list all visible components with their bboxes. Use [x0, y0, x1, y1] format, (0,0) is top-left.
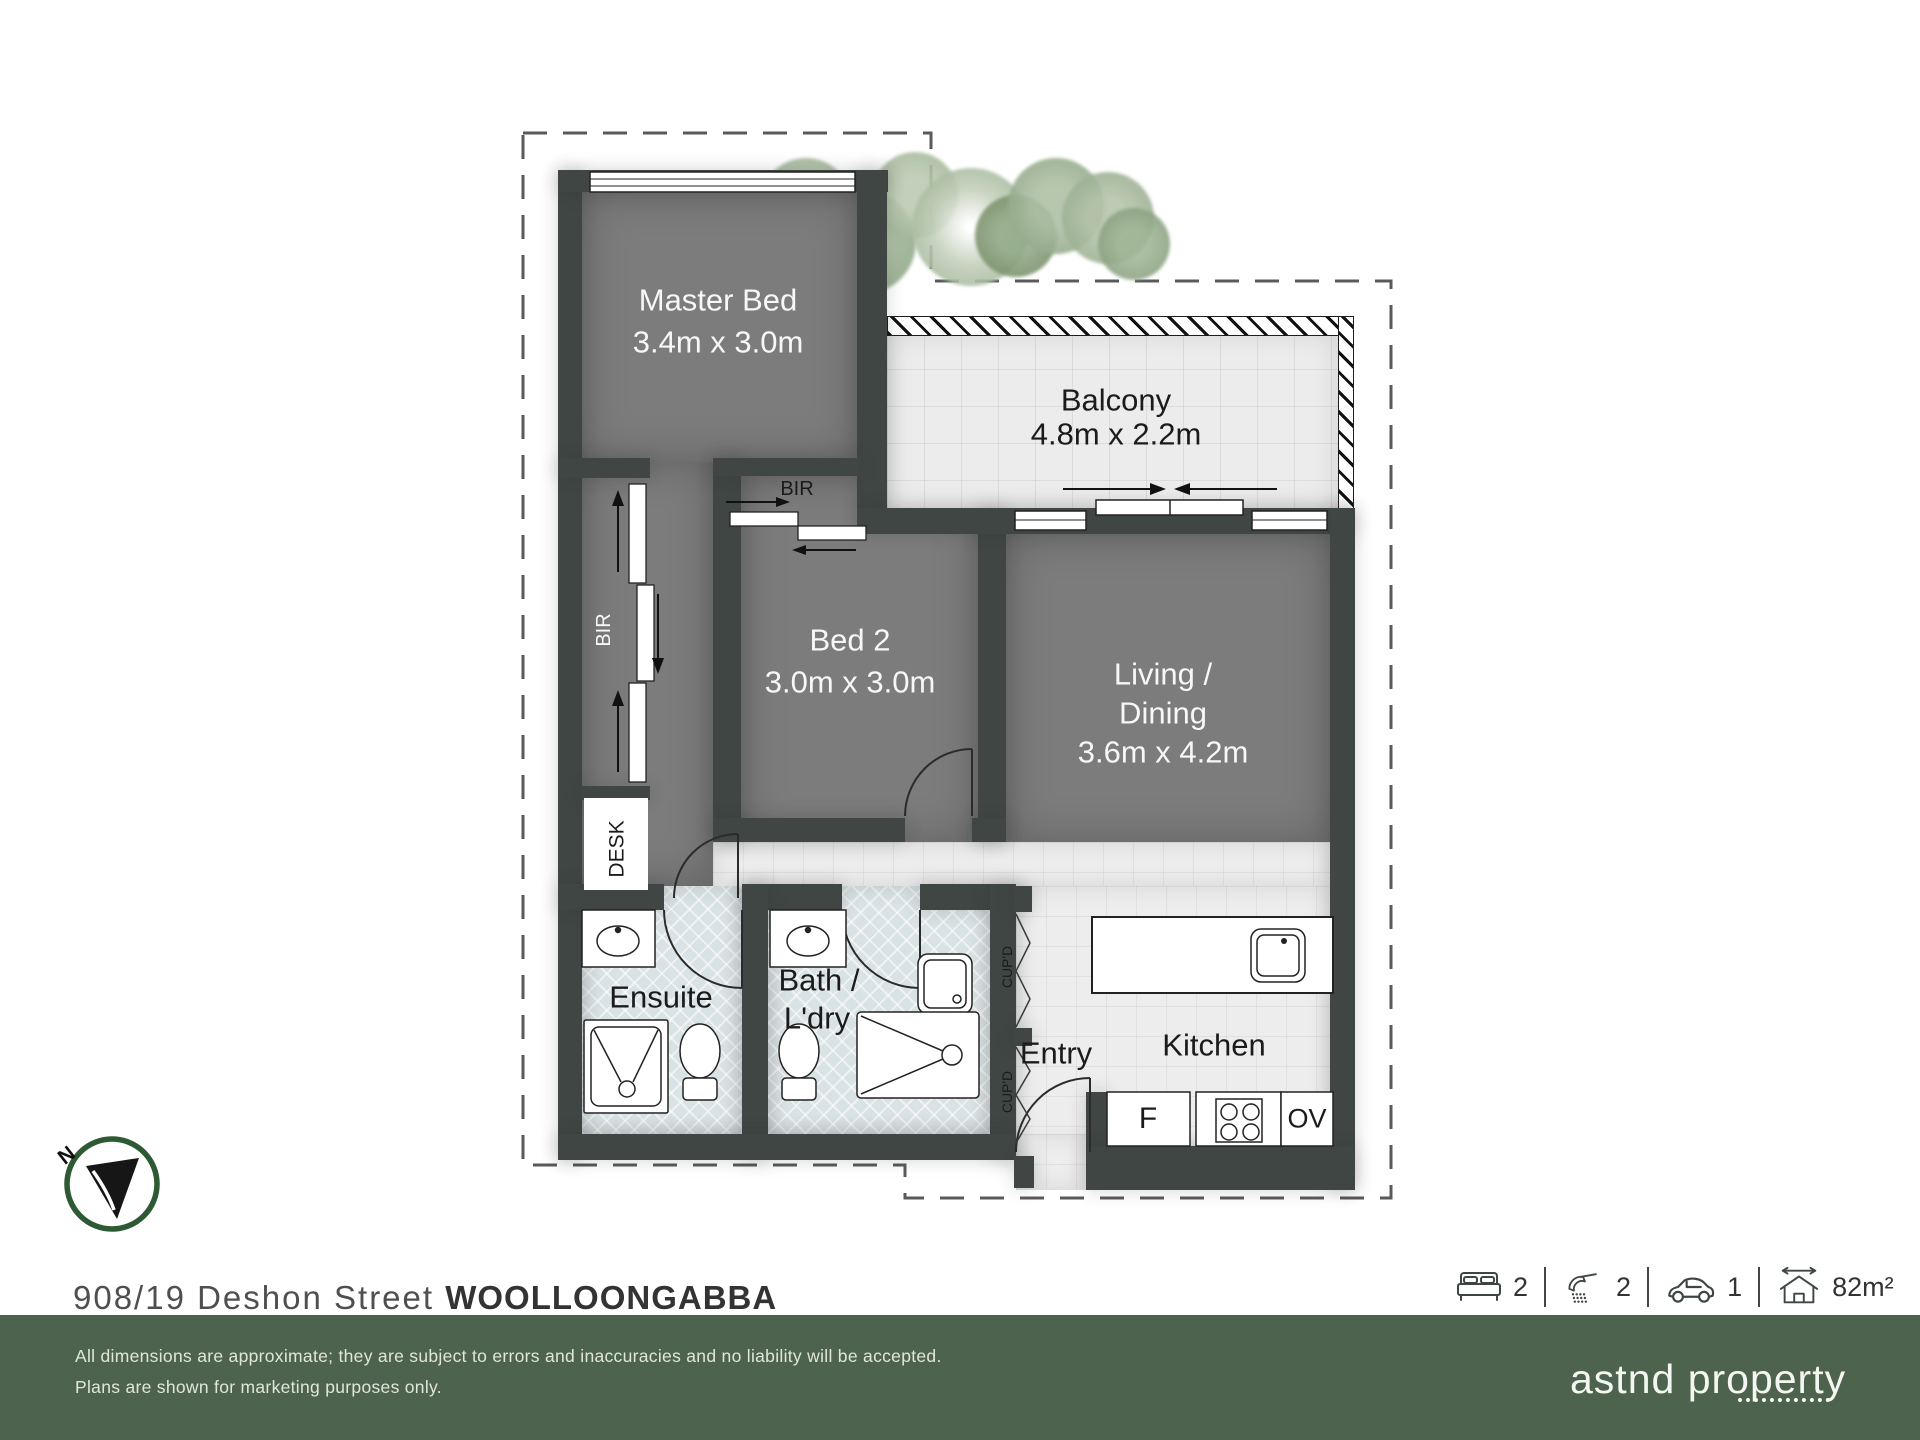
wall-bed2-bottom-b [972, 818, 1006, 842]
wall-master-top [558, 170, 888, 192]
bed2-name: Bed 2 [809, 625, 890, 656]
oven-label: OV [1287, 1106, 1326, 1133]
compass-north-label: N [48, 1137, 86, 1174]
wall-bath-right [990, 884, 1016, 1160]
ensuite-name: Ensuite [609, 982, 712, 1013]
bath-line2: L'dry [784, 1003, 850, 1034]
car-icon [1665, 1268, 1717, 1306]
wall-master-right [857, 170, 887, 512]
stats-divider [1647, 1267, 1649, 1307]
wall-cupd-stub-top [1014, 886, 1032, 912]
living-line1: Living / [1114, 659, 1212, 690]
wall-east [1330, 508, 1355, 1190]
balcony-name: Balcony [1061, 385, 1171, 416]
kitchen-name: Kitchen [1162, 1030, 1265, 1061]
beds-count: 2 [1513, 1272, 1528, 1303]
stats-divider [1758, 1267, 1760, 1307]
master-name: Master Bed [639, 285, 798, 316]
cupboard-label-top: CUP'D [1000, 946, 1014, 988]
wall-bed2-top [713, 458, 859, 476]
entry-kitchen-floor [1016, 886, 1330, 1146]
wall-bed2-living-divider [978, 508, 1006, 842]
area-value: 82m² [1832, 1272, 1894, 1303]
entry-name: Entry [1020, 1038, 1092, 1069]
wall-entry-stub-bottom [1014, 1156, 1034, 1188]
fridge-label: F [1139, 1104, 1157, 1134]
property-address: 908/19 Deshon Street WOOLLOONGABBA [73, 1279, 777, 1317]
address-street: 908/19 Deshon Street [73, 1279, 434, 1316]
tree-icon [1098, 208, 1170, 280]
wall-hall-divider [713, 458, 741, 842]
balcony-railing-top [887, 316, 1354, 336]
wall-bath-divider [742, 884, 768, 1160]
stats-divider [1544, 1267, 1546, 1307]
wall-robe-stub-top [558, 458, 650, 478]
hall-bir-label: BIR [594, 613, 614, 646]
wall-west [558, 170, 582, 1160]
balcony-railing-right [1338, 316, 1354, 514]
cars-count: 1 [1727, 1272, 1742, 1303]
bath-line1: Bath / [779, 965, 860, 996]
wall-kitchen-stub [1086, 1092, 1107, 1146]
corridor-floor [713, 842, 1330, 886]
wall-north-living [857, 508, 1355, 534]
desk-label: DESK [607, 820, 628, 877]
bed-icon [1455, 1268, 1503, 1306]
balcony-dims: 4.8m x 2.2m [1031, 419, 1202, 450]
area-icon [1776, 1267, 1822, 1307]
shower-icon [1562, 1268, 1606, 1306]
agency-logo: astnd property [1570, 1356, 1846, 1403]
cupboard-label-bottom: CUP'D [1000, 1071, 1014, 1113]
property-stats: 2 2 1 82m² [1455, 1262, 1894, 1312]
baths-count: 2 [1616, 1272, 1631, 1303]
bed2-dims: 3.0m x 3.0m [765, 667, 936, 698]
living-line2: Dining [1119, 698, 1207, 729]
master-dims: 3.4m x 3.0m [633, 327, 804, 358]
wall-bath-bottom [558, 1134, 1016, 1160]
floorplan-page: Master Bed 3.4m x 3.0m Balcony 4.8m x 2.… [0, 0, 1920, 1440]
wall-bed2-bottom-a [713, 818, 905, 842]
disclaimer-line-1: All dimensions are approximate; they are… [75, 1346, 942, 1367]
address-suburb: WOOLLOONGABBA [445, 1279, 777, 1316]
bed2-bir-label: BIR [780, 479, 813, 499]
living-dims: 3.6m x 4.2m [1078, 737, 1249, 768]
disclaimer-line-2: Plans are shown for marketing purposes o… [75, 1377, 442, 1398]
agency-logo-dots [1738, 1398, 1830, 1402]
wall-kitchen-bottom [1086, 1146, 1355, 1190]
